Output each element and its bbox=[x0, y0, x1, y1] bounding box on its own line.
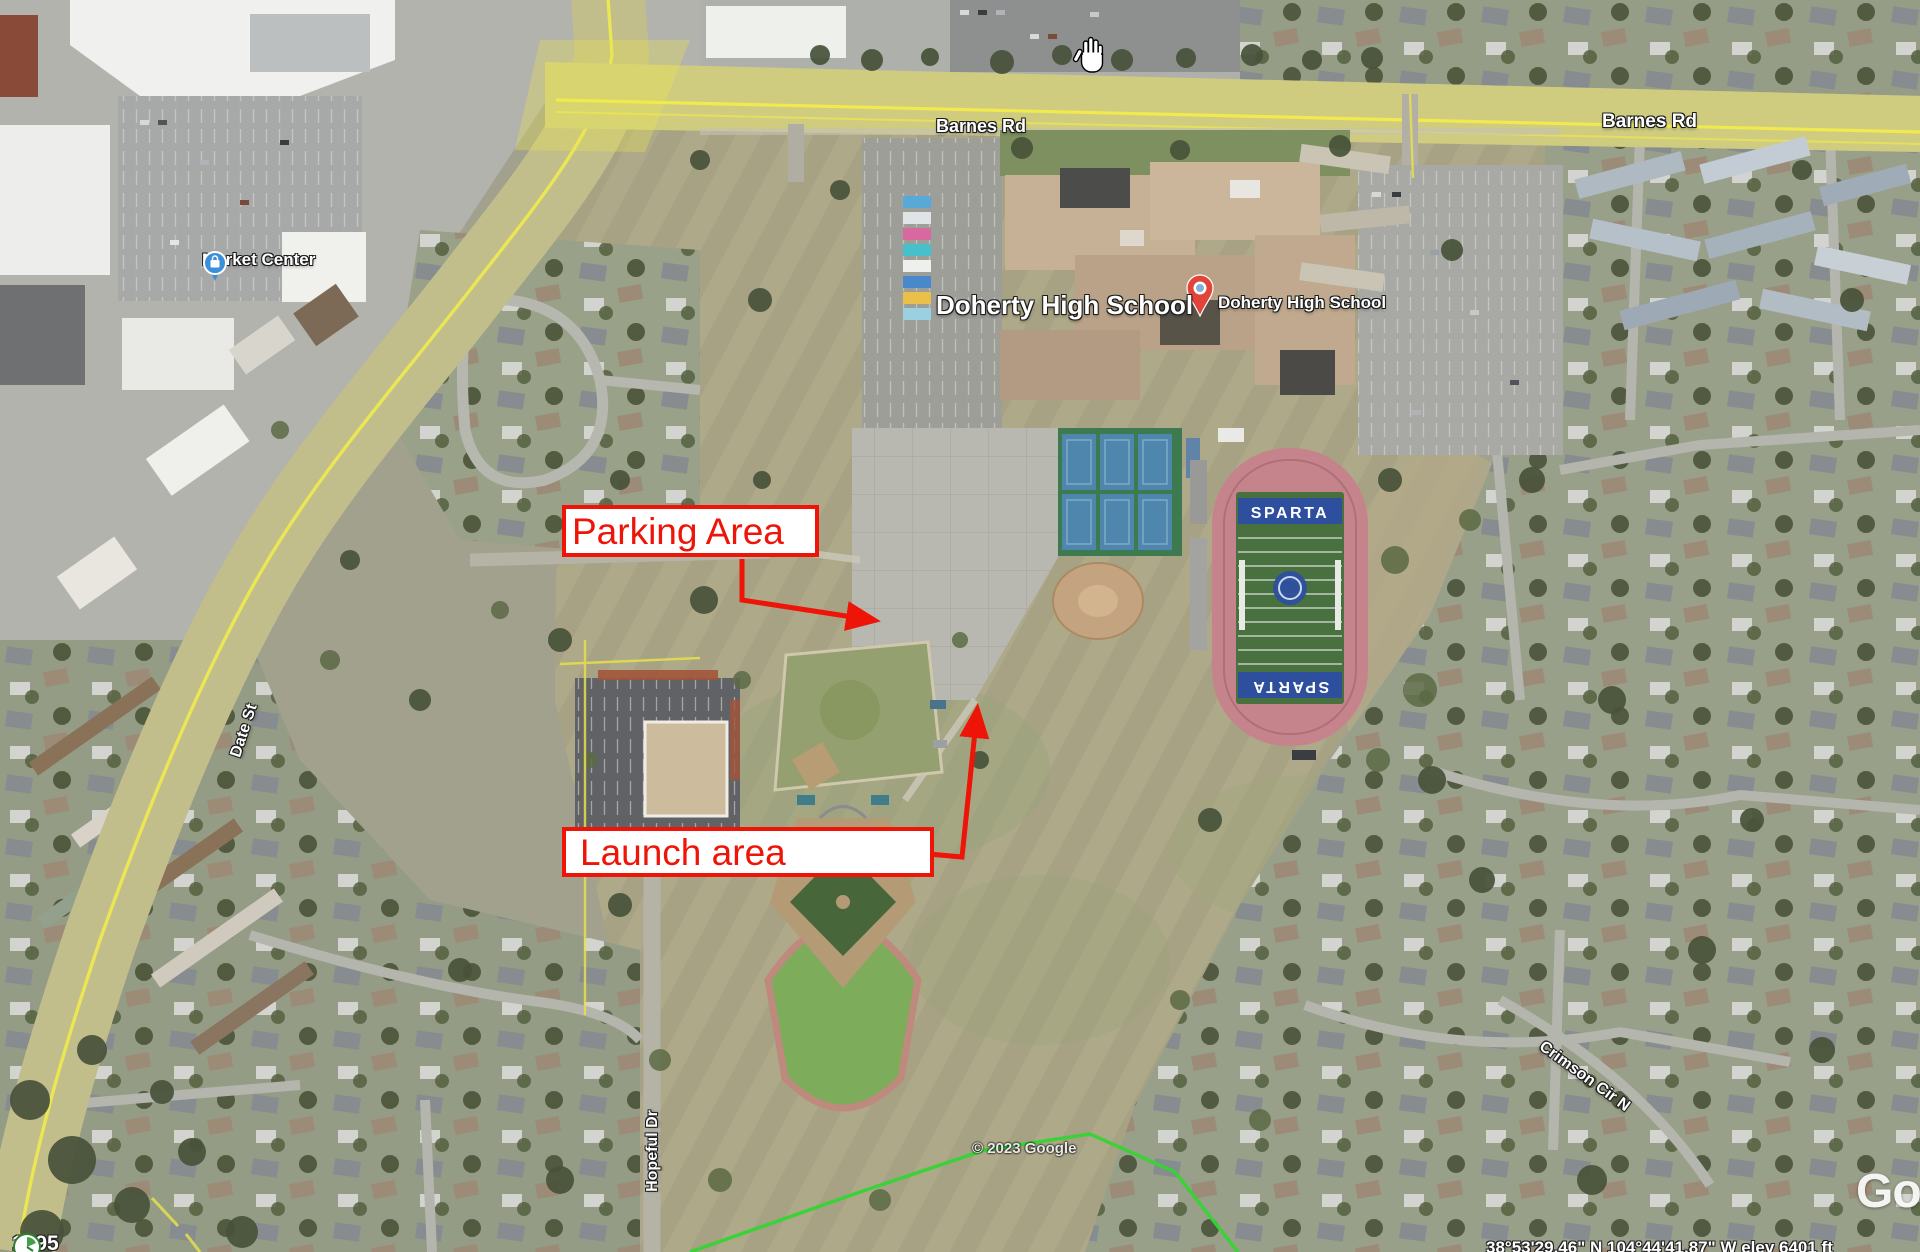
parking-area-callout: Parking Area bbox=[562, 505, 819, 557]
school-parking-west bbox=[862, 138, 1002, 428]
endzone-text-north: SPARTA bbox=[1251, 505, 1329, 522]
tennis-courts bbox=[1058, 428, 1182, 556]
clock-icon bbox=[12, 1232, 42, 1252]
history-widget[interactable]: 1995 bbox=[12, 1232, 59, 1252]
endzone-text-south: SPARTA bbox=[1251, 678, 1329, 695]
launch-area-text: Launch area bbox=[580, 834, 786, 871]
parking-area-text: Parking Area bbox=[572, 513, 784, 550]
baseball-field-upper bbox=[775, 642, 947, 790]
shopping-bag-icon bbox=[202, 250, 228, 284]
launch-area-callout: Launch area bbox=[562, 827, 934, 877]
google-earth-map-stage[interactable]: SPARTA SPARTA bbox=[0, 0, 1920, 1252]
church-site bbox=[575, 670, 740, 853]
dirt-circle bbox=[1053, 563, 1143, 639]
residential-top-right bbox=[1240, 0, 1920, 95]
market-center-poi[interactable]: Market Center bbox=[202, 250, 315, 270]
satellite-imagery[interactable]: SPARTA SPARTA bbox=[0, 0, 1920, 1252]
status-coordinates: 38°53'29.46" N 104°44'41.87" W elev 6401… bbox=[1486, 1238, 1833, 1252]
